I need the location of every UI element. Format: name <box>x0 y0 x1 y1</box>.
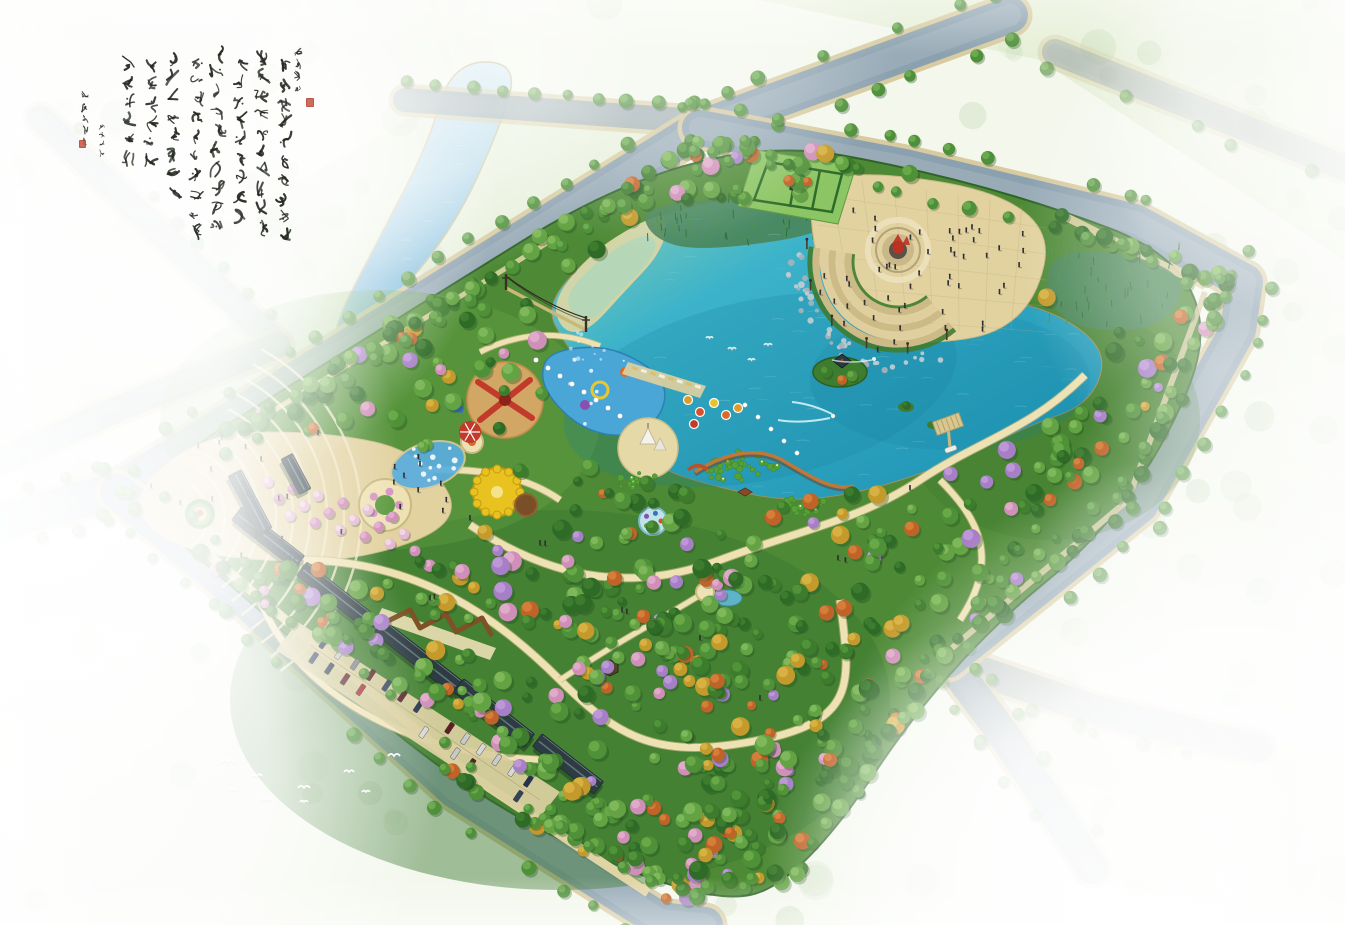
aerial-rendering: Park landscape master plan - aerial pers… <box>0 0 1345 925</box>
scene-canvas <box>0 0 1345 925</box>
